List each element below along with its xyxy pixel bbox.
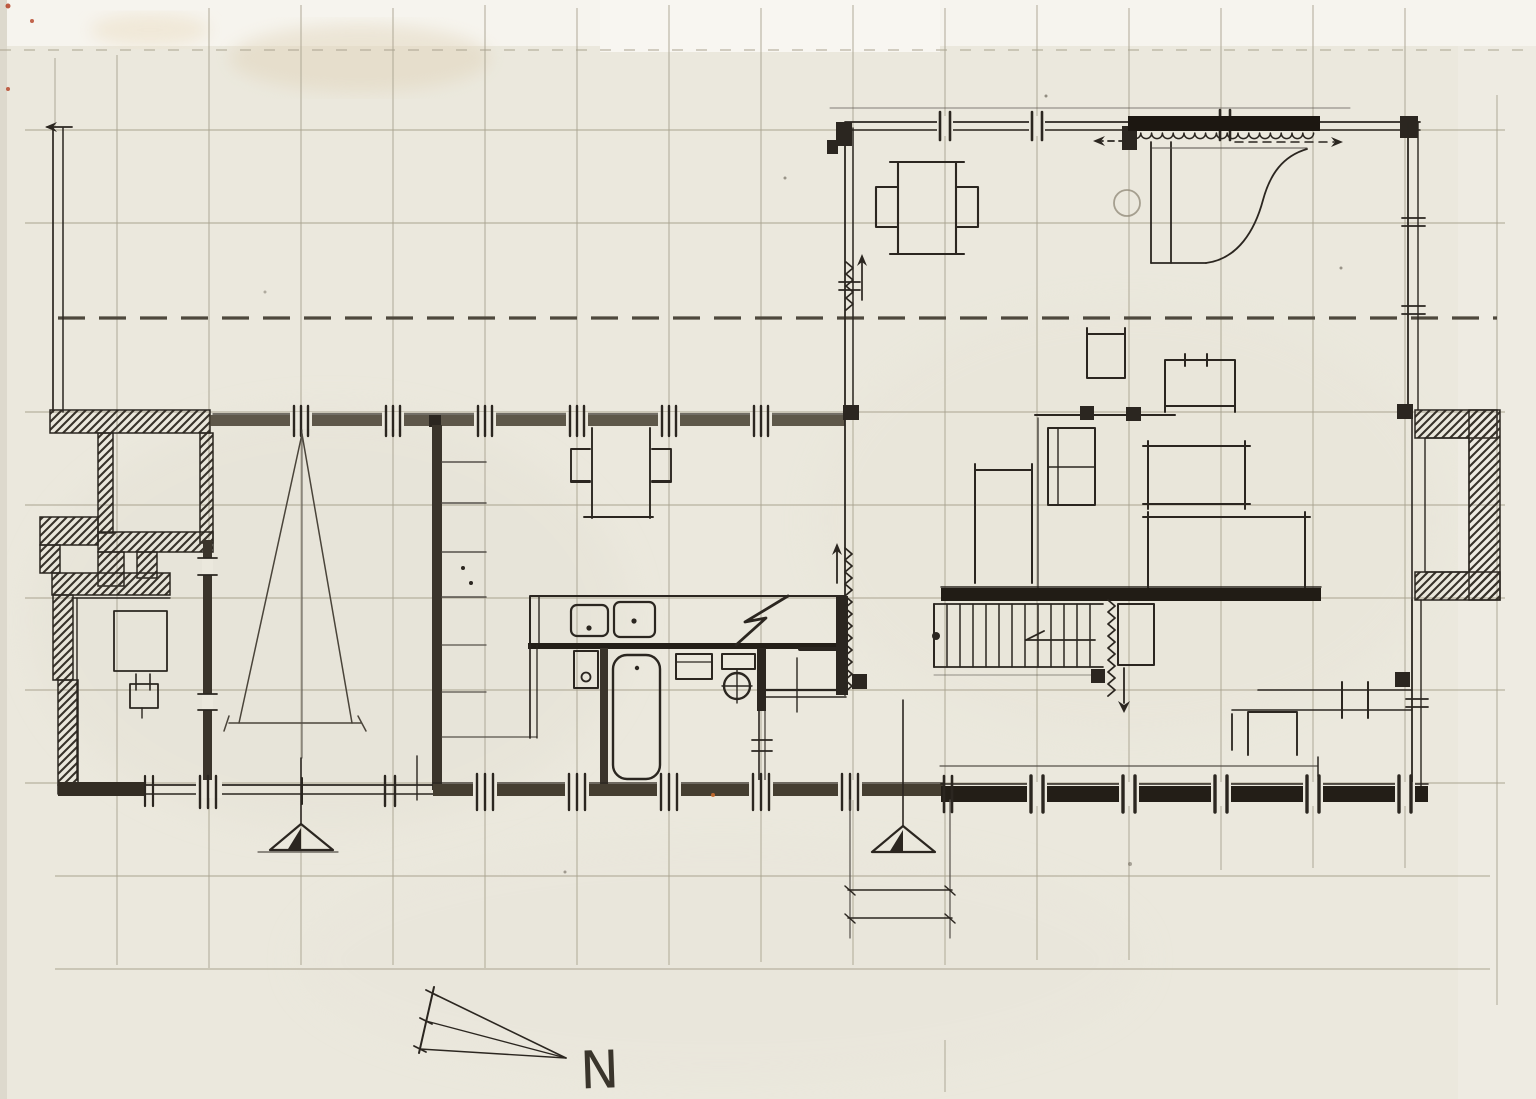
sliding-door-panel	[1128, 116, 1320, 131]
column	[1080, 406, 1094, 420]
column	[1400, 116, 1418, 138]
column	[1126, 407, 1141, 421]
column	[843, 405, 859, 420]
floor-plan-drawing: N	[0, 0, 1536, 1099]
north-label: N	[579, 1040, 620, 1099]
column	[1395, 672, 1410, 687]
scanned-floor-plan: N	[0, 0, 1536, 1099]
stair-wall	[941, 588, 1321, 601]
column	[836, 122, 852, 146]
column	[1091, 669, 1105, 683]
column	[852, 674, 867, 689]
column	[1397, 404, 1413, 419]
